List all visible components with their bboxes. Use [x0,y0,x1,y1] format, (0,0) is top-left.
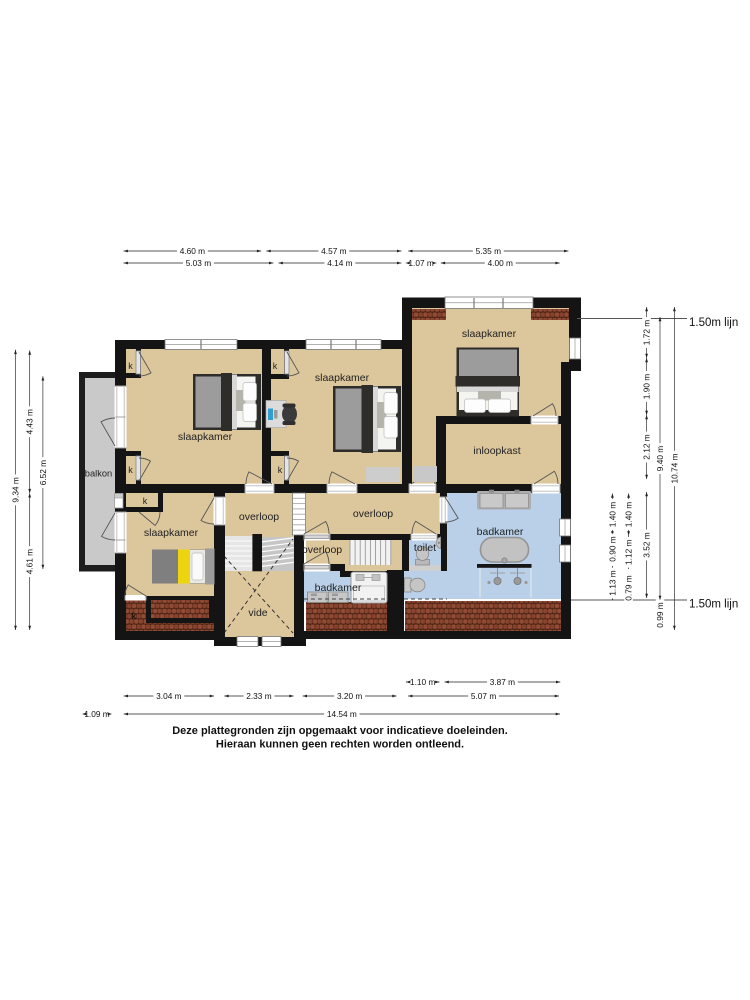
svg-text:1.50m lijn: 1.50m lijn [689,317,738,329]
svg-text:1.12 m: 1.12 m [624,539,634,564]
svg-text:k: k [128,465,133,475]
svg-text:3.52 m: 3.52 m [642,532,652,557]
svg-text:3.20 m: 3.20 m [337,691,362,701]
svg-text:0.90 m: 0.90 m [607,536,617,561]
svg-text:overloop: overloop [302,544,342,556]
svg-text:0.99 m: 0.99 m [655,602,665,627]
svg-text:5.35 m: 5.35 m [476,246,501,256]
svg-text:0.79 m: 0.79 m [624,575,634,600]
svg-text:slaapkamer: slaapkamer [462,328,517,340]
svg-text:1.40 m: 1.40 m [624,502,634,527]
svg-text:k: k [273,361,278,371]
svg-text:1.90 m: 1.90 m [642,374,652,399]
svg-text:3.04 m: 3.04 m [156,691,181,701]
svg-text:badkamer: badkamer [315,582,362,594]
svg-text:slaapkamer: slaapkamer [178,431,233,443]
svg-text:4.60 m: 4.60 m [180,246,205,256]
svg-text:overloop: overloop [353,508,393,520]
svg-text:k: k [278,465,283,475]
svg-text:4.43 m: 4.43 m [25,409,35,434]
svg-text:k: k [128,361,133,371]
svg-text:slaapkamer: slaapkamer [144,527,199,539]
svg-text:k: k [143,496,148,506]
svg-text:1.13 m: 1.13 m [607,570,617,595]
svg-text:1.50m lijn: 1.50m lijn [689,599,738,611]
svg-text:4.00 m: 4.00 m [488,258,513,268]
svg-text:4.57 m: 4.57 m [321,246,346,256]
svg-text:14.54 m: 14.54 m [327,709,357,719]
svg-text:5.03 m: 5.03 m [186,258,211,268]
svg-text:1.10 m: 1.10 m [410,677,435,687]
svg-text:10.74 m: 10.74 m [669,453,679,483]
svg-text:overloop: overloop [239,511,279,523]
svg-text:badkamer: badkamer [477,526,524,538]
svg-text:Hieraan kunnen geen rechten wo: Hieraan kunnen geen rechten worden ontle… [216,739,464,751]
svg-text:5.07 m: 5.07 m [471,691,496,701]
svg-text:1.09 m: 1.09 m [84,709,109,719]
svg-text:slaapkamer: slaapkamer [315,372,370,384]
svg-text:1.72 m: 1.72 m [642,320,652,345]
svg-text:Deze plattegronden zijn opgema: Deze plattegronden zijn opgemaakt voor i… [172,725,508,737]
svg-text:k: k [132,611,137,621]
svg-text:2.12 m: 2.12 m [642,434,652,459]
svg-text:4.61 m: 4.61 m [25,549,35,574]
svg-text:3.87 m: 3.87 m [490,677,515,687]
svg-text:1.07 m: 1.07 m [408,258,433,268]
svg-text:balkon: balkon [85,469,112,479]
svg-text:2.33 m: 2.33 m [246,691,271,701]
svg-text:toilet: toilet [414,542,436,554]
svg-text:inloopkast: inloopkast [473,445,520,457]
svg-text:9.40 m: 9.40 m [655,446,665,471]
svg-text:vide: vide [248,607,267,619]
svg-text:1.40 m: 1.40 m [607,502,617,527]
svg-text:4.14 m: 4.14 m [327,258,352,268]
svg-text:6.52 m: 6.52 m [38,460,48,485]
svg-text:9.34 m: 9.34 m [10,477,20,502]
